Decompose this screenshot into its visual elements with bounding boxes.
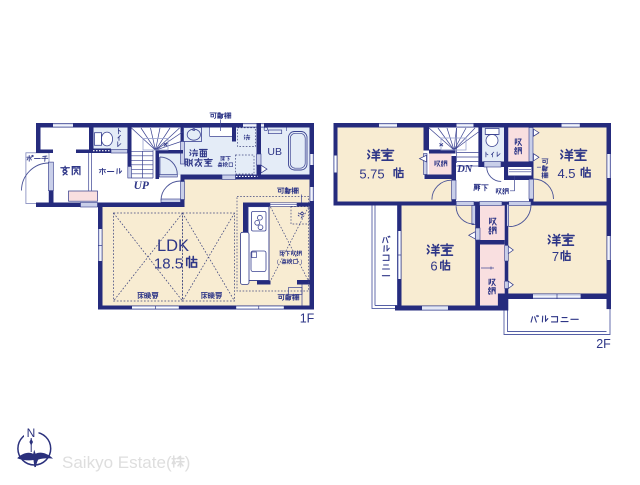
svg-text:LDK: LDK xyxy=(157,237,189,255)
svg-text:): ) xyxy=(185,453,191,472)
svg-text:Saikyo Estate(: Saikyo Estate( xyxy=(62,453,172,472)
svg-text:): ) xyxy=(300,260,302,266)
svg-text:18.5: 18.5 xyxy=(154,256,183,273)
svg-text:1F: 1F xyxy=(300,312,315,326)
svg-text:5.75: 5.75 xyxy=(359,167,384,182)
svg-text:UP: UP xyxy=(134,180,150,192)
svg-text:(: ( xyxy=(277,260,279,266)
svg-text:2F: 2F xyxy=(596,337,611,351)
svg-text:DN: DN xyxy=(456,164,473,175)
svg-text:6: 6 xyxy=(430,259,437,274)
svg-text:N: N xyxy=(27,426,36,440)
svg-text:4.5: 4.5 xyxy=(557,166,575,181)
svg-text:7: 7 xyxy=(552,249,559,264)
svg-text:UB: UB xyxy=(267,146,282,158)
